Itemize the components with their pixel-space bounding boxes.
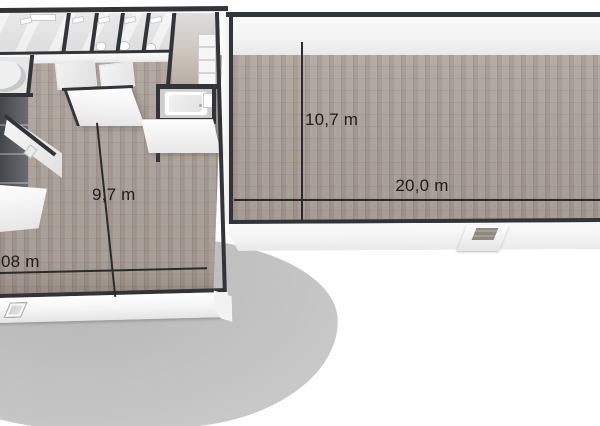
dimension-label-hall-length: 20,0 m bbox=[380, 177, 464, 196]
dimension-label-room-depth: 9,7 m bbox=[92, 186, 136, 205]
hall-bottom-wall-face bbox=[229, 222, 600, 251]
dimension-label-room-width: 08 m bbox=[1, 253, 40, 272]
stall-window-sill bbox=[30, 14, 56, 21]
window-pane bbox=[5, 303, 26, 317]
platform bbox=[141, 119, 221, 153]
dimension-line-hall-depth bbox=[301, 42, 303, 221]
hall-floor bbox=[233, 55, 600, 223]
dimension-line-hall-length bbox=[234, 199, 600, 201]
hall-top-wall-face bbox=[233, 17, 600, 55]
canopy bbox=[63, 88, 145, 126]
window-strip-corner bbox=[214, 290, 233, 322]
floorplan-canvas: 10,7 m 20,0 m 9,7 m 08 m bbox=[0, 0, 600, 426]
dimension-label-hall-depth: 10,7 m bbox=[305, 111, 358, 130]
bathtub-drain bbox=[199, 104, 202, 107]
bathtub-basin bbox=[169, 95, 202, 112]
building-top-wall bbox=[0, 6, 228, 13]
window-strip bbox=[0, 282, 232, 328]
hall-left-wall bbox=[229, 12, 233, 224]
bed-panel bbox=[55, 59, 98, 90]
shelving-unit bbox=[198, 34, 216, 88]
